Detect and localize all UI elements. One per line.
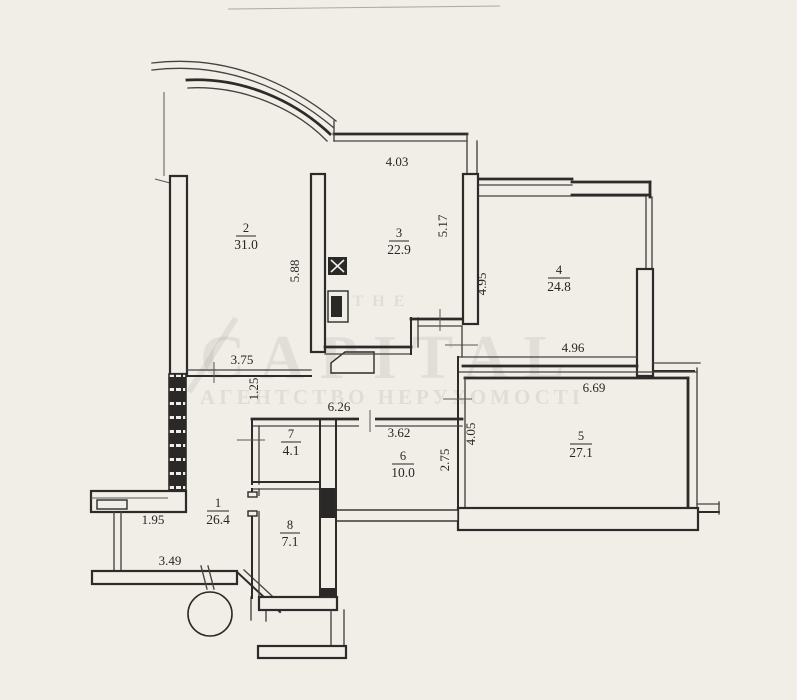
room4-top-wall [477,179,650,197]
dim-hall-top: 6.26 [328,399,351,414]
room6-bottom-wall [336,510,458,521]
dim-room4-bottom: 4.96 [562,340,585,355]
room2-left-wall [170,176,187,374]
floor-plan-drawing: THE CAPITAL АГЕНТСТВО НЕРУХОМОСТІ [0,0,797,700]
room1-number: 1 [215,496,221,510]
dim-room3-right: 5.17 [435,214,450,237]
dim-room3-left: 5.88 [287,260,302,283]
room6-number: 6 [400,449,406,463]
column-circle [188,592,232,636]
room4-number: 4 [556,263,563,277]
room4-right-wall [637,197,700,376]
entry-angled-wall [237,570,284,621]
room3-area: 22.9 [387,242,411,257]
room5-number: 5 [578,429,584,443]
watermark-the: THE [353,293,414,310]
room7-area: 4.1 [283,443,300,458]
room8-number: 8 [287,518,293,532]
loggia-window-wall [169,374,186,492]
dim-hall-bottom: 3.49 [159,553,182,568]
room7-number: 7 [288,427,294,441]
room2-room3-divider-wall [311,174,325,352]
dim-room3-top: 4.03 [386,154,409,169]
dim-room6-right: 2.75 [437,449,452,472]
vent-shaft-icon [328,257,348,322]
room3-number: 3 [396,226,402,240]
scan-artifact-line [228,6,500,9]
dim-hall-upper-v: 1.25 [246,378,261,401]
room1-area: 26.4 [206,512,230,527]
dim-room6-top: 3.62 [388,425,411,440]
dim-room5-left: 4.05 [463,423,478,446]
dim-hall-upper: 3.75 [231,352,254,367]
floor-plan-canvas: THE CAPITAL АГЕНТСТВО НЕРУХОМОСТІ [0,0,797,700]
room5-area: 27.1 [569,445,593,460]
room7-room8-walls [237,410,462,658]
room3-room4-divider-wall [463,174,478,324]
room5-right-wall [688,368,719,516]
room2-area: 31.0 [234,237,258,252]
room8-area: 7.1 [282,534,299,549]
dim-room5-top: 6.69 [583,380,606,395]
room5-bottom-wall [458,508,698,530]
room2-number: 2 [243,221,249,235]
dim-hall-left: 1.95 [142,512,165,527]
room6-area: 10.0 [391,465,415,480]
dim-room4-left: 4.95 [474,273,489,296]
balcony-curved-wall [152,61,336,183]
room4-area: 24.8 [547,279,571,294]
